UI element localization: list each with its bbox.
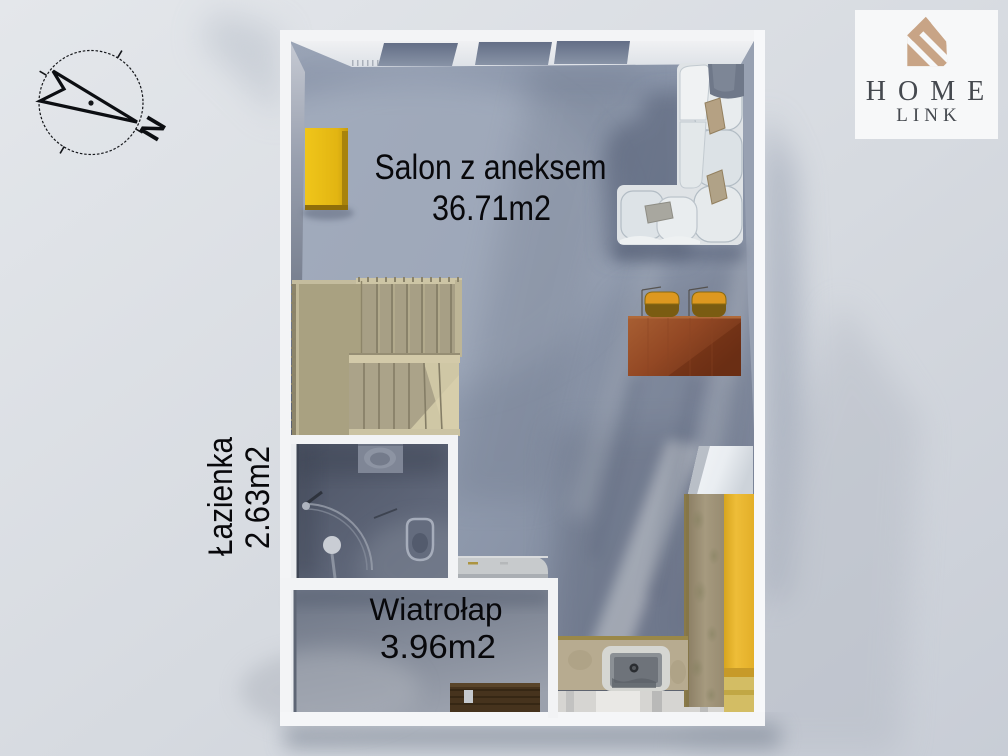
svg-text:LINK: LINK	[896, 105, 961, 126]
svg-text:Łazienka: Łazienka	[202, 437, 240, 556]
svg-text:2.63m2: 2.63m2	[239, 446, 277, 549]
svg-text:3.96m2: 3.96m2	[380, 628, 496, 665]
svg-text:HOME: HOME	[866, 76, 996, 107]
svg-text:Wiatrołap: Wiatrołap	[370, 591, 503, 627]
svg-text:36.71m2: 36.71m2	[432, 189, 551, 228]
svg-text:Salon z aneksem: Salon z aneksem	[375, 148, 607, 187]
